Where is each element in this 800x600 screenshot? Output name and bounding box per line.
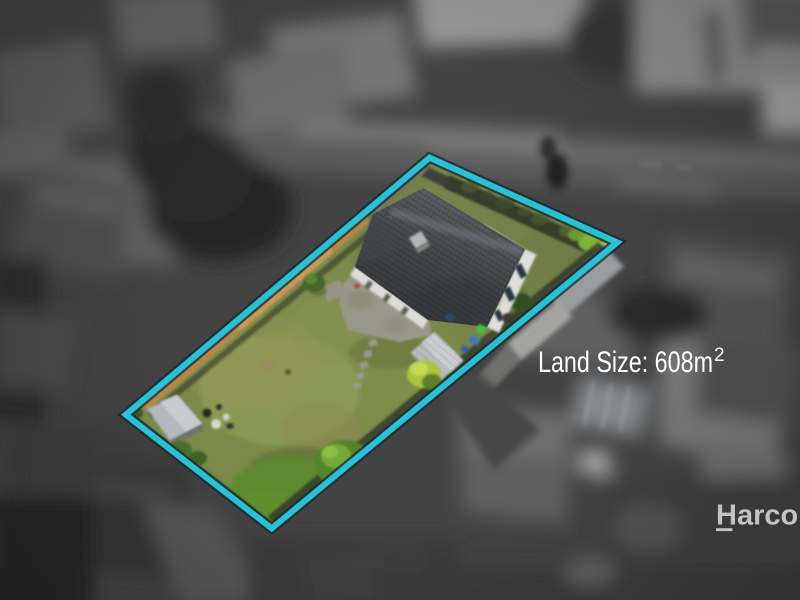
svg-text:Harcou: Harcou [716,500,800,532]
svg-text:2: 2 [714,345,725,366]
svg-text:Land Size: 608m: Land Size: 608m [538,346,713,379]
